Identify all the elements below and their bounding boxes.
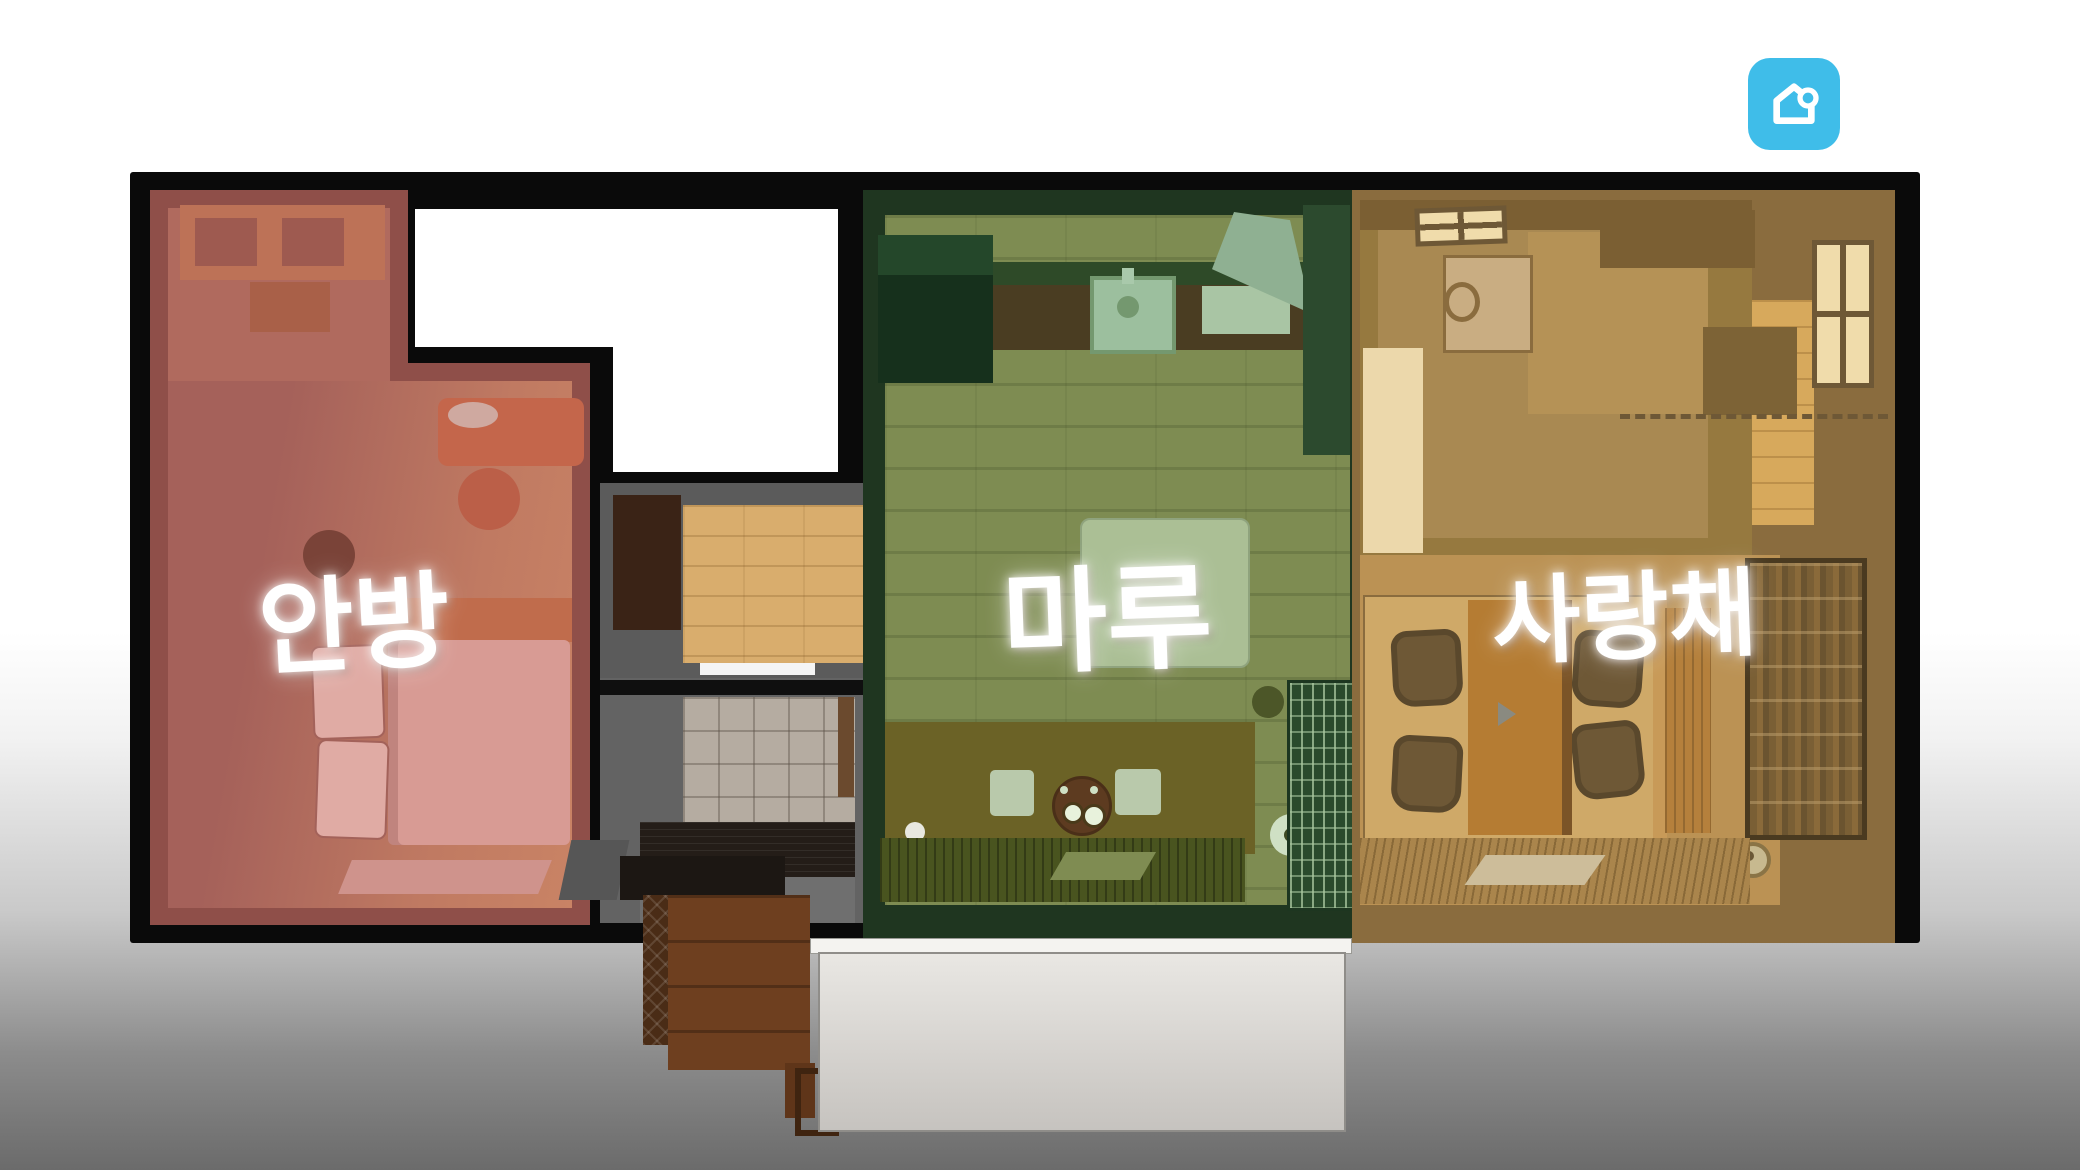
sarangchae-ceiling-shade: [1600, 210, 1755, 268]
skylight-panes: [1420, 211, 1503, 242]
bowl: [448, 402, 498, 428]
sink-faucet: [1122, 268, 1134, 284]
porch: [818, 952, 1346, 1132]
floor-cushion: [990, 770, 1034, 816]
stair-landing: [620, 856, 785, 900]
table-item: [1090, 786, 1098, 794]
room-label-sarangchae: 사랑채: [1490, 535, 1760, 683]
washer-drum: [1444, 282, 1480, 322]
office-chair: [1390, 734, 1464, 814]
courtyard-notch-lower: [613, 209, 838, 472]
table-dish: [1062, 802, 1084, 824]
sarangchae-mat-gap: [1464, 855, 1605, 885]
pouf: [458, 468, 520, 530]
low-table: [1703, 327, 1797, 415]
floorplan-canvas: 안방 마루 사랑채: [0, 0, 2080, 1170]
door-handle: [1498, 702, 1516, 726]
stair-rail: [643, 895, 671, 1045]
plant-pot: [1252, 686, 1284, 718]
entry-closet: [613, 495, 681, 630]
sink-drain: [1117, 296, 1139, 318]
maru-mat-gap: [1050, 852, 1156, 880]
bathroom-tiles: [683, 697, 855, 822]
lattice-screen: [1287, 680, 1359, 911]
bookshelf: [1745, 558, 1867, 840]
side-window-panes: [1817, 245, 1869, 383]
floor-cushion: [1115, 769, 1161, 815]
bathroom-wall-top: [600, 680, 875, 695]
office-chair: [1390, 628, 1464, 708]
sofa-cushion: [195, 218, 257, 266]
entry-threshold: [700, 663, 815, 675]
bedroom-rug: [338, 860, 552, 894]
office-chair: [1569, 719, 1647, 802]
table-dish: [1082, 804, 1106, 828]
stairs: [668, 895, 810, 1070]
refrigerator: [878, 235, 993, 383]
room-label-maru: 마루: [999, 524, 1214, 696]
side-table: [250, 282, 330, 332]
home-app-icon: [1748, 58, 1840, 150]
home-icon-glyph: [1762, 72, 1826, 136]
table-item: [1060, 786, 1068, 794]
bathroom-door-edge: [838, 697, 854, 797]
sofa-cushion: [282, 218, 344, 266]
room-label-anbang: 안방: [254, 535, 453, 696]
entry-wood-floor: [683, 505, 863, 663]
skylight: [1414, 205, 1507, 246]
storeroom-mat: [1363, 348, 1423, 553]
side-window: [1812, 240, 1874, 388]
sliding-door-track: [1620, 414, 1888, 419]
pillow: [314, 739, 389, 840]
maru-right-wall: [1303, 205, 1350, 455]
